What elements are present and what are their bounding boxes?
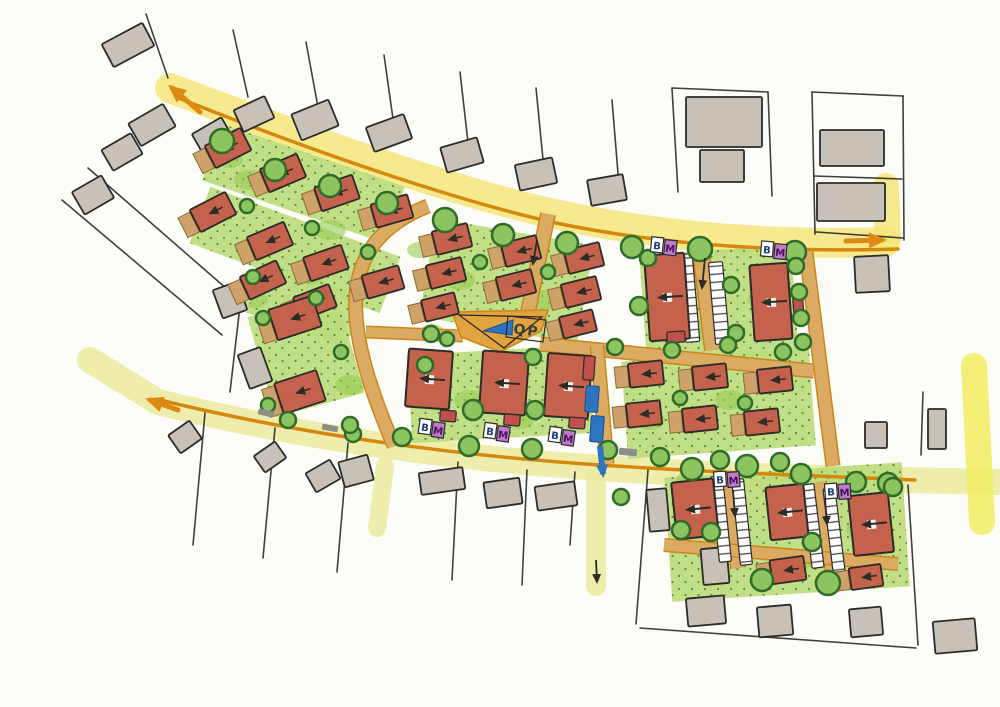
tree xyxy=(803,533,821,551)
tree xyxy=(791,464,811,484)
lot-line xyxy=(812,92,903,96)
existing-building xyxy=(338,455,374,488)
tree xyxy=(342,417,358,433)
tree xyxy=(334,345,348,359)
existing-building xyxy=(817,183,885,221)
road-direction-arrow xyxy=(846,240,882,241)
lot-line xyxy=(903,96,904,240)
existing-building xyxy=(933,618,978,654)
tree xyxy=(541,265,555,279)
tree xyxy=(672,521,690,539)
existing-building xyxy=(168,421,202,454)
lot-line xyxy=(522,470,527,585)
red-annex xyxy=(583,356,596,381)
tree xyxy=(720,337,736,353)
existing-building xyxy=(419,467,466,495)
tree xyxy=(309,291,323,305)
existing-building xyxy=(587,174,627,206)
visitor-parking-letter: B xyxy=(550,431,559,443)
lane-arrow xyxy=(596,560,597,582)
tree xyxy=(319,175,341,197)
waste-point-letter: M xyxy=(775,248,786,260)
tree xyxy=(884,478,902,496)
tree xyxy=(795,334,811,350)
east-cross-road xyxy=(974,366,982,522)
waste-point-letter: M xyxy=(665,244,676,256)
red-annex xyxy=(569,417,586,429)
lot-line xyxy=(672,88,768,92)
tree xyxy=(702,523,720,541)
visitor-parking-letter: B xyxy=(653,241,662,253)
tree xyxy=(240,199,254,213)
garage-strip xyxy=(668,411,683,433)
red-annex xyxy=(504,414,521,426)
tree xyxy=(775,344,791,360)
lot-line xyxy=(908,485,918,645)
waste-point-letter: M xyxy=(839,488,850,500)
tree xyxy=(264,159,286,181)
tree xyxy=(376,192,398,214)
tree xyxy=(473,255,487,269)
tree xyxy=(393,428,411,446)
tree xyxy=(280,412,296,428)
tree xyxy=(630,297,648,315)
tree xyxy=(440,332,454,346)
lot-line xyxy=(921,392,923,455)
existing-building xyxy=(102,23,155,68)
pedestrian-route-segment xyxy=(585,386,600,413)
waste-point-letter: M xyxy=(562,434,573,446)
tree xyxy=(651,448,669,466)
lot-line xyxy=(230,306,240,392)
tree xyxy=(210,129,234,153)
apartment-building xyxy=(479,350,529,415)
existing-building xyxy=(305,459,340,492)
pedestrian-route-arrow xyxy=(600,446,603,474)
tree xyxy=(305,221,319,235)
existing-building xyxy=(757,605,793,638)
red-annex xyxy=(440,410,457,422)
tree xyxy=(673,391,687,405)
tree xyxy=(711,451,729,469)
apartment-building xyxy=(848,492,894,556)
existing-building xyxy=(865,422,887,448)
tree xyxy=(788,258,804,274)
tree xyxy=(256,311,270,325)
new-house xyxy=(612,400,662,429)
existing-building xyxy=(849,607,883,638)
tree xyxy=(681,458,703,480)
visitor-parking-letter: B xyxy=(827,487,835,499)
tree xyxy=(613,489,629,505)
tree xyxy=(246,270,260,284)
tree xyxy=(417,357,433,373)
existing-building xyxy=(72,175,114,215)
tree xyxy=(526,401,544,419)
tree xyxy=(751,569,773,591)
tree xyxy=(664,342,680,358)
lot-line xyxy=(768,92,772,196)
tree xyxy=(607,339,623,355)
tree xyxy=(738,396,752,410)
existing-building xyxy=(686,97,762,147)
tree xyxy=(688,237,712,261)
tree xyxy=(423,326,439,342)
waste-point-letter: M xyxy=(728,476,739,488)
pedestrian-route-segment xyxy=(590,416,605,443)
garden-shade xyxy=(335,375,365,395)
tree xyxy=(816,571,840,595)
tree xyxy=(791,284,807,300)
plaza-label: QP xyxy=(513,321,541,340)
existing-building xyxy=(646,488,670,532)
tree xyxy=(525,349,541,365)
existing-building xyxy=(820,130,884,166)
existing-building xyxy=(700,150,744,182)
visitor-parking-letter: B xyxy=(420,423,429,435)
tree xyxy=(522,439,542,459)
tree xyxy=(361,245,375,259)
garage-strip xyxy=(612,406,627,428)
existing-building xyxy=(928,409,946,449)
apartment-building xyxy=(765,484,808,541)
tree xyxy=(771,453,789,471)
garage-strip xyxy=(743,372,758,394)
existing-building xyxy=(535,481,578,510)
masterplan-sketch: QP BMBMBMBMBMBMBM xyxy=(0,0,1000,707)
southwest-road-stub xyxy=(377,466,385,528)
garage-strip xyxy=(678,369,693,391)
existing-building xyxy=(515,157,558,190)
north-road-stub xyxy=(886,186,888,240)
tree xyxy=(433,208,457,232)
tree xyxy=(459,436,479,456)
existing-building xyxy=(686,595,726,626)
visitor-parking-letter: B xyxy=(763,245,772,257)
apartment-building xyxy=(749,263,792,341)
existing-building xyxy=(440,137,484,172)
garage-strip xyxy=(614,366,629,388)
waste-point-letter: M xyxy=(497,430,508,442)
waste-point-letter: M xyxy=(432,426,443,438)
existing-building xyxy=(366,114,412,152)
lot-line xyxy=(672,88,678,192)
lot-line xyxy=(812,92,815,234)
visitor-parking-letter: B xyxy=(716,475,724,487)
tree xyxy=(723,277,739,293)
tree xyxy=(556,232,578,254)
lot-line xyxy=(233,30,248,97)
existing-building xyxy=(254,441,287,472)
existing-building xyxy=(483,478,522,509)
tree xyxy=(793,310,809,326)
tree xyxy=(492,224,514,246)
existing-building xyxy=(854,255,890,293)
visitor-parking-letter: B xyxy=(485,427,494,439)
garage-strip xyxy=(730,414,745,436)
tree xyxy=(463,400,483,420)
